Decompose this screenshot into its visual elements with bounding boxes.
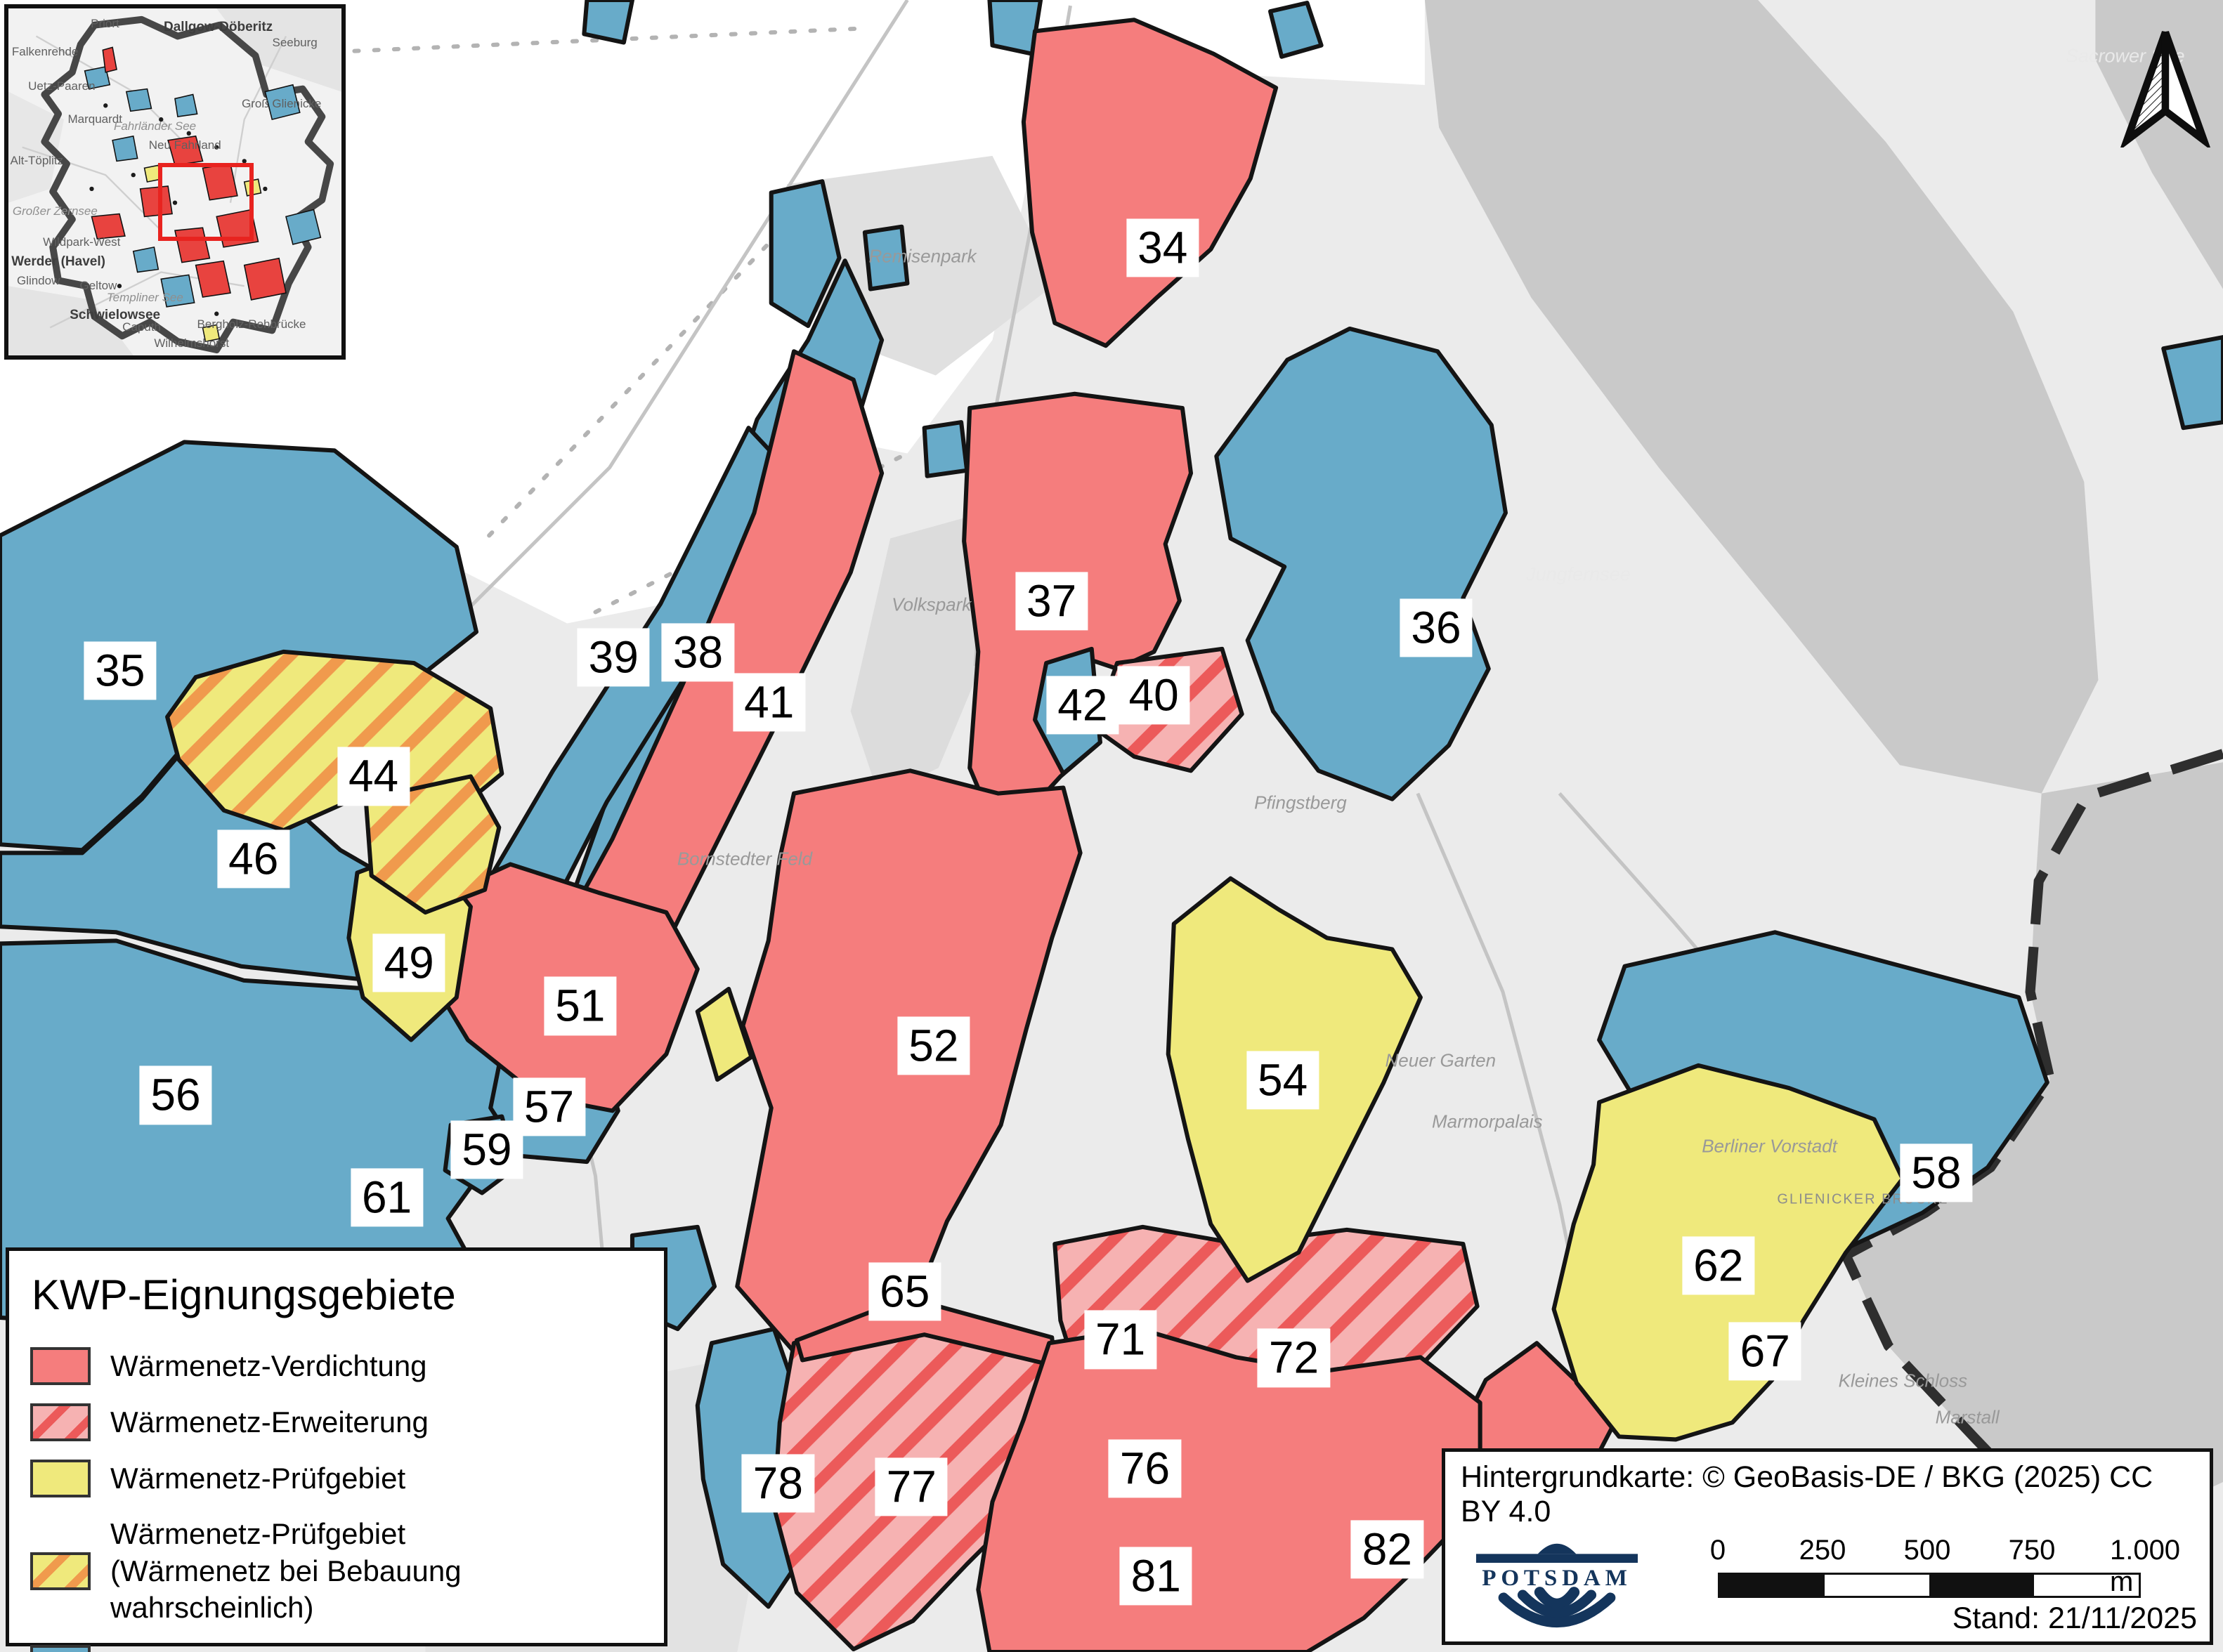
scale-tick: 250 [1799,1535,1846,1566]
legend-row-erweiterung: Wärmenetz-Erweiterung [30,1403,643,1441]
inset-label: Falkenrehde [12,45,79,59]
attribution-box: Hintergrundkarte: © GeoBasis-DE / BKG (2… [1442,1448,2213,1645]
inset-label: Groß Glienicke [242,97,321,111]
region-label-49: 49 [373,934,445,992]
scale-bar-ticks: 0 250 500 750 1.000 m [1718,1535,2137,1570]
legend-swatch-pruefgebiet [30,1460,91,1497]
legend-swatch-individualversorgung [30,1645,91,1652]
legend-label: Individualversorgung [110,1647,383,1652]
legend-swatch-verdichtung [30,1347,91,1385]
north-arrow-icon [2116,27,2215,147]
region-label-61: 61 [351,1169,423,1227]
region-label-81: 81 [1120,1547,1192,1605]
region-label-57: 57 [513,1077,585,1136]
inset-label: Fahrländer See [114,119,196,133]
region-label-41: 41 [733,673,805,731]
scale-tick: 750 [2009,1535,2056,1566]
legend-label: Wärmenetz-Prüfgebiet [110,1462,405,1495]
legend-label: Wärmenetz-Verdichtung [110,1349,427,1383]
inset-label: Caputh [122,320,161,334]
region-label-40: 40 [1118,667,1190,725]
scale-bar-segments [1718,1573,2141,1598]
legend-swatch-erweiterung [30,1403,91,1441]
legend-row-pruefgebiet: Wärmenetz-Prüfgebiet [30,1460,643,1497]
inset-label: Priort [91,17,119,31]
region-label-39: 39 [578,629,650,687]
region-label-52: 52 [897,1016,970,1075]
legend-label: Wärmenetz-Prüfgebiet [110,1516,643,1553]
scale-bar: 0 250 500 750 1.000 m [1718,1535,2167,1598]
inset-label: Uetz-Paaren [28,79,95,93]
region-label-58: 58 [1900,1143,1972,1202]
inset-label: Werder (Havel) [11,254,105,270]
scale-tick: 1.000 m [2110,1535,2180,1598]
map-label: Marmorpalais [1432,1111,1543,1133]
legend-sublabel: (Wärmenetz bei Bebauung wahrscheinlich) [110,1553,643,1627]
region-label-37: 37 [1015,572,1088,631]
legend-row-individualversorgung: Individualversorgung [30,1645,643,1652]
potsdam-logo: POTSDAM [1465,1536,1649,1646]
inset-label: Wildpark-West [43,235,120,249]
attribution-text: Hintergrundkarte: © GeoBasis-DE / BKG (2… [1461,1460,2194,1529]
region-label-34: 34 [1126,218,1199,277]
region-label-35: 35 [84,641,156,700]
map-label: Neuer Garten [1386,1049,1497,1071]
region-label-67: 67 [1729,1322,1801,1380]
inset-overview-map: Dallgow-DöberitzSeeburgPriortFalkenrehde… [4,4,346,360]
region-label-71: 71 [1084,1311,1156,1369]
region-label-62: 62 [1682,1236,1754,1294]
inset-label: Neu Fahrland [149,138,221,152]
region-label-51: 51 [544,977,616,1035]
legend-title: KWP-Eignungsgebiete [32,1271,643,1319]
region-label-72: 72 [1258,1329,1330,1387]
region-label-56: 56 [139,1066,211,1125]
region-label-82: 82 [1351,1521,1423,1579]
legend-label: Wärmenetz-Erweiterung [110,1405,429,1439]
scale-tick: 500 [1904,1535,1951,1566]
map-label: Volkspark [892,594,971,615]
region-label-46: 46 [217,830,289,888]
inset-label: Templiner See [107,291,183,305]
region-label-44: 44 [337,747,410,806]
region-label-38: 38 [662,623,734,681]
map-label: Pfingstberg [1254,792,1347,814]
stand-date: Stand: 21/11/2025 [1953,1601,2197,1636]
region-label-59: 59 [450,1120,523,1179]
map-label: Remisenpark [868,245,976,267]
inset-label: Wilhelmshorst [154,336,229,350]
region-label-76: 76 [1109,1439,1181,1497]
region-label-65: 65 [868,1263,941,1321]
inset-label: Glindow [17,274,60,288]
inset-label: Dallgow-Döberitz [164,20,273,35]
region-label-77: 77 [875,1457,948,1516]
region-label-42: 42 [1046,676,1119,735]
inset-extent-rectangle [158,163,253,241]
scale-tick: 0 [1710,1535,1726,1566]
legend-row-verdichtung: Wärmenetz-Verdichtung [30,1347,643,1385]
zone-blue-patch [925,422,967,476]
inset-label: Seeburg [272,36,317,50]
map-label: Marstall [1936,1407,2000,1429]
inset-label: Alt-Töplitz [10,154,63,168]
region-label-54: 54 [1246,1051,1319,1110]
map-label: Jungfernsee [1526,564,1631,586]
inset-label: Bergholz-Rehbrücke [197,317,306,332]
potsdam-logo-text: POTSDAM [1482,1565,1631,1591]
map-page: JungfernseeSacrower SeeNeuer GartenMarmo… [0,0,2223,1652]
map-label: Kleines Schloss [1839,1370,1968,1392]
legend-row-pruefgebiet-wahrscheinlich: Wärmenetz-Prüfgebiet (Wärmenetz bei Beba… [30,1516,643,1627]
legend-box: KWP-Eignungsgebiete Wärmenetz-Verdichtun… [6,1247,667,1646]
inset-label: Großer Zernsee [13,204,98,218]
map-label: Berliner Vorstadt [1702,1136,1837,1158]
legend-swatch-pruefgebiet-wahrscheinlich [30,1552,91,1590]
map-label: Bornstedter Feld [677,848,812,870]
zone-blue-patch [584,0,632,43]
region-label-36: 36 [1400,598,1472,657]
region-label-78: 78 [742,1455,814,1513]
